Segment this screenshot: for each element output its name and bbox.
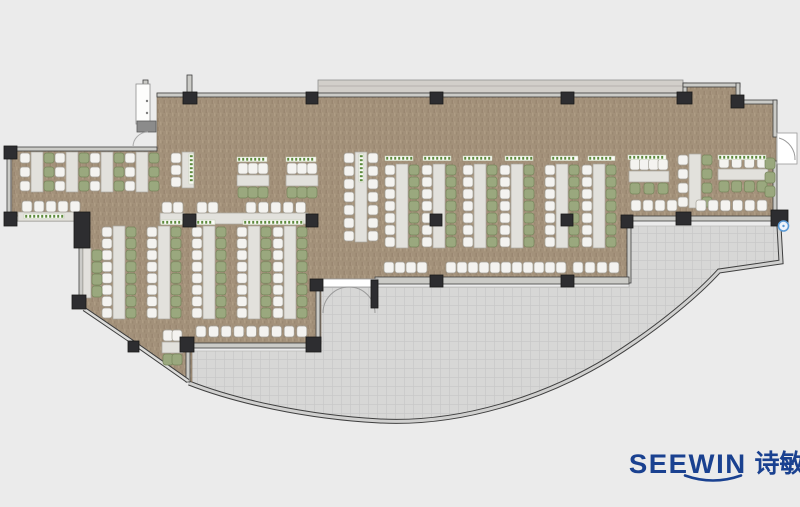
green-chair: [307, 187, 317, 198]
white-chair: [696, 200, 706, 211]
green-chair: [287, 187, 297, 198]
white-chair: [582, 177, 592, 187]
label-glyph: [649, 156, 651, 159]
white-chair: [500, 225, 510, 235]
white-chair: [192, 239, 202, 249]
label-glyph: [629, 156, 631, 159]
wall-segment: [79, 244, 83, 300]
white-chair: [196, 326, 206, 337]
white-chair: [147, 250, 157, 260]
white-chair: [545, 165, 555, 175]
desk: [284, 226, 296, 319]
label-glyph: [280, 221, 282, 224]
green-chair: [409, 165, 419, 175]
green-chair: [297, 227, 307, 237]
column: [430, 214, 442, 226]
column: [4, 146, 17, 159]
label-glyph: [264, 221, 266, 224]
white-chair: [259, 326, 269, 337]
white-chair: [545, 262, 555, 273]
white-chair: [58, 201, 68, 212]
white-chair: [582, 213, 592, 223]
green-chair: [171, 239, 181, 249]
label-glyph: [190, 163, 193, 165]
green-chair: [248, 187, 258, 198]
white-chair: [463, 165, 473, 175]
green-chair: [487, 225, 497, 235]
column: [310, 279, 323, 291]
white-chair: [192, 285, 202, 295]
desk: [248, 226, 260, 319]
green-chair: [261, 239, 271, 249]
green-chair: [446, 201, 456, 211]
desk: [113, 226, 125, 319]
logo-swoosh-icon: [682, 474, 744, 484]
white-chair: [479, 262, 489, 273]
white-chair: [102, 227, 112, 237]
label-glyph: [601, 157, 603, 160]
green-chair: [569, 189, 579, 199]
label-glyph: [242, 158, 244, 161]
white-chair: [20, 153, 30, 163]
label-glyph: [260, 221, 262, 224]
label-glyph: [747, 156, 749, 159]
white-chair: [534, 262, 544, 273]
white-chair: [22, 201, 32, 212]
white-chair: [368, 231, 378, 241]
green-chair: [409, 201, 419, 211]
label-glyph: [468, 157, 470, 160]
desk: [593, 164, 605, 248]
white-chair: [192, 227, 202, 237]
white-chair: [237, 227, 247, 237]
desk: [629, 171, 669, 182]
white-chair: [273, 262, 283, 272]
green-chair: [446, 177, 456, 187]
label-glyph: [476, 157, 478, 160]
label-glyph: [307, 158, 309, 161]
white-chair: [385, 189, 395, 199]
white-chair: [573, 262, 583, 273]
exterior-ledge: [318, 80, 683, 93]
green-chair: [238, 187, 248, 198]
white-chair: [655, 200, 665, 211]
green-chair: [719, 181, 729, 192]
white-chair: [102, 285, 112, 295]
wall-segment: [186, 348, 190, 382]
label-glyph: [506, 157, 508, 160]
green-chair: [216, 227, 226, 237]
green-chair: [171, 227, 181, 237]
label-glyph: [174, 221, 176, 224]
white-chair: [457, 262, 467, 273]
desk: [158, 226, 170, 319]
green-chair: [216, 239, 226, 249]
white-chair: [287, 163, 297, 174]
green-chair: [149, 167, 159, 177]
rotation-marker-dot: [782, 225, 784, 227]
desk: [31, 152, 43, 192]
label-glyph: [41, 215, 43, 218]
column: [430, 92, 443, 104]
green-chair: [524, 177, 534, 187]
white-chair: [500, 237, 510, 247]
green-chair: [297, 250, 307, 260]
green-chair: [606, 213, 616, 223]
label-glyph: [201, 221, 203, 224]
green-chair: [171, 250, 181, 260]
white-chair: [667, 200, 677, 211]
white-chair: [173, 202, 183, 213]
desk: [83, 248, 91, 298]
green-chair: [297, 239, 307, 249]
white-chair: [368, 179, 378, 189]
green-chair: [126, 273, 136, 283]
cad-marker: [779, 221, 789, 231]
label-glyph: [299, 158, 301, 161]
white-chair: [283, 202, 293, 213]
green-chair: [297, 187, 307, 198]
white-chair: [446, 262, 456, 273]
label-glyph: [25, 215, 27, 218]
label-glyph: [572, 157, 574, 160]
label-glyph: [291, 158, 293, 161]
label-glyph: [238, 158, 240, 161]
label-glyph: [763, 156, 765, 159]
label-glyph: [360, 175, 363, 177]
label-glyph: [727, 156, 729, 159]
white-chair: [422, 225, 432, 235]
white-chair: [422, 189, 432, 199]
green-chair: [569, 225, 579, 235]
white-chair: [523, 262, 533, 273]
label-glyph: [564, 157, 566, 160]
label-glyph: [292, 221, 294, 224]
desk: [556, 164, 568, 248]
white-chair: [273, 273, 283, 283]
white-chair: [500, 201, 510, 211]
desk: [136, 152, 148, 192]
label-glyph: [484, 157, 486, 160]
green-chair: [297, 273, 307, 283]
desk: [396, 164, 408, 248]
white-chair: [147, 262, 157, 272]
label-glyph: [190, 171, 193, 173]
column: [183, 214, 196, 227]
white-chair: [720, 200, 730, 211]
green-chair: [92, 274, 102, 285]
wall-segment: [316, 287, 320, 340]
desk: [66, 152, 78, 192]
white-chair: [271, 202, 281, 213]
green-chair: [126, 262, 136, 272]
white-chair: [512, 262, 522, 273]
white-chair: [631, 200, 641, 211]
white-chair: [368, 218, 378, 228]
white-chair: [344, 179, 354, 189]
label-glyph: [256, 221, 258, 224]
desk: [433, 164, 445, 248]
green-chair: [297, 308, 307, 318]
swoosh-path: [685, 476, 741, 481]
label-glyph: [284, 221, 286, 224]
wall-segment: [683, 83, 740, 87]
white-chair: [582, 237, 592, 247]
green-chair: [297, 285, 307, 295]
label-glyph: [510, 157, 512, 160]
white-chair: [678, 155, 688, 165]
green-chair: [409, 237, 419, 247]
green-chair: [569, 165, 579, 175]
white-chair: [368, 205, 378, 215]
label-glyph: [394, 157, 396, 160]
label-glyph: [29, 215, 31, 218]
green-chair: [126, 296, 136, 306]
white-chair: [463, 177, 473, 187]
white-chair: [307, 163, 317, 174]
white-chair: [500, 177, 510, 187]
label-glyph: [311, 158, 313, 161]
wall-segment: [7, 152, 11, 218]
green-chair: [44, 181, 54, 191]
white-chair: [385, 201, 395, 211]
green-chair: [765, 158, 775, 169]
green-chair: [630, 183, 640, 194]
label-glyph: [661, 156, 663, 159]
white-chair: [609, 262, 619, 273]
green-chair: [524, 225, 534, 235]
east-door-leaf: [777, 133, 797, 164]
label-glyph: [530, 157, 532, 160]
column: [676, 212, 691, 225]
column: [306, 92, 318, 104]
column: [72, 295, 86, 309]
label-glyph: [178, 221, 180, 224]
white-chair: [20, 167, 30, 177]
label-glyph: [252, 221, 254, 224]
cabinet-knob: [146, 112, 148, 114]
white-chair: [406, 262, 416, 273]
white-chair: [422, 165, 432, 175]
white-chair: [422, 177, 432, 187]
white-chair: [500, 189, 510, 199]
white-chair: [272, 326, 282, 337]
green-chair: [258, 187, 268, 198]
white-chair: [147, 227, 157, 237]
label-glyph: [258, 158, 260, 161]
white-chair: [678, 197, 688, 207]
label-glyph: [568, 157, 570, 160]
green-chair: [446, 225, 456, 235]
green-chair: [149, 181, 159, 191]
white-chair: [102, 239, 112, 249]
green-chair: [92, 250, 102, 261]
label-glyph: [432, 157, 434, 160]
white-chair: [273, 285, 283, 295]
green-chair: [606, 165, 616, 175]
green-chair: [409, 189, 419, 199]
white-chair: [237, 308, 247, 318]
white-chair: [344, 231, 354, 241]
white-chair: [273, 239, 283, 249]
label-glyph: [276, 221, 278, 224]
green-chair: [658, 183, 668, 194]
green-chair: [446, 213, 456, 223]
white-chair: [296, 202, 306, 213]
white-chair: [102, 273, 112, 283]
door-swing-arc: [133, 132, 148, 147]
white-chair: [163, 330, 173, 341]
white-chair: [90, 181, 100, 191]
green-chair: [261, 296, 271, 306]
white-chair: [545, 189, 555, 199]
label-glyph: [244, 221, 246, 224]
label-glyph: [53, 215, 55, 218]
label-glyph: [488, 157, 490, 160]
label-glyph: [360, 163, 363, 165]
green-chair: [524, 237, 534, 247]
green-chair: [92, 286, 102, 297]
white-chair: [422, 201, 432, 211]
desk: [286, 175, 318, 186]
white-chair: [757, 200, 767, 211]
green-chair: [702, 169, 712, 179]
white-chair: [192, 250, 202, 260]
white-chair: [385, 237, 395, 247]
green-chair: [216, 285, 226, 295]
column: [128, 341, 139, 352]
label-glyph: [719, 156, 721, 159]
label-glyph: [593, 157, 595, 160]
green-chair: [216, 262, 226, 272]
logo-chinese-text: 诗敏: [755, 451, 800, 478]
wall-segment: [187, 75, 192, 93]
label-glyph: [254, 158, 256, 161]
label-glyph: [190, 159, 193, 161]
white-chair: [162, 202, 172, 213]
label-glyph: [428, 157, 430, 160]
column: [621, 215, 633, 228]
green-chair: [79, 181, 89, 191]
green-chair: [569, 201, 579, 211]
floor-plan-drawing: [0, 0, 800, 507]
green-chair: [487, 177, 497, 187]
green-chair: [487, 213, 497, 223]
label-glyph: [288, 221, 290, 224]
green-chair: [732, 181, 742, 192]
label-glyph: [751, 156, 753, 159]
green-chair: [216, 250, 226, 260]
green-chair: [409, 177, 419, 187]
white-chair: [344, 205, 354, 215]
white-chair: [90, 153, 100, 163]
label-glyph: [633, 156, 635, 159]
label-glyph: [170, 221, 172, 224]
green-chair: [171, 262, 181, 272]
white-chair: [545, 225, 555, 235]
column: [561, 92, 574, 104]
label-glyph: [287, 158, 289, 161]
white-chair: [344, 192, 354, 202]
label-glyph: [739, 156, 741, 159]
white-chair: [147, 239, 157, 249]
white-chair: [125, 181, 135, 191]
label-glyph: [37, 215, 39, 218]
green-chair: [261, 285, 271, 295]
green-chair: [114, 167, 124, 177]
label-glyph: [759, 156, 761, 159]
green-chair: [44, 167, 54, 177]
label-glyph: [300, 221, 302, 224]
green-chair: [524, 189, 534, 199]
white-chair: [384, 262, 394, 273]
label-glyph: [166, 221, 168, 224]
white-chair: [368, 166, 378, 176]
desk: [237, 175, 269, 186]
label-glyph: [440, 157, 442, 160]
green-chair: [261, 250, 271, 260]
column: [677, 92, 692, 104]
green-chair: [446, 237, 456, 247]
label-glyph: [190, 175, 193, 177]
white-chair: [237, 250, 247, 260]
white-chair: [237, 273, 247, 283]
wall-segment: [627, 216, 777, 221]
white-chair: [237, 239, 247, 249]
column: [731, 95, 744, 108]
white-chair: [649, 159, 659, 170]
green-chair: [216, 296, 226, 306]
label-glyph: [480, 157, 482, 160]
desk: [474, 164, 486, 248]
white-chair: [368, 192, 378, 202]
green-chair: [261, 308, 271, 318]
white-chair: [34, 201, 44, 212]
white-chair: [463, 201, 473, 211]
green-chair: [524, 201, 534, 211]
white-chair: [238, 163, 248, 174]
cabinet-knob: [146, 100, 148, 102]
label-glyph: [522, 157, 524, 160]
green-chair: [487, 189, 497, 199]
green-chair: [606, 177, 616, 187]
white-chair: [468, 262, 478, 273]
white-chair: [55, 153, 65, 163]
label-glyph: [272, 221, 274, 224]
label-glyph: [303, 158, 305, 161]
white-chair: [597, 262, 607, 273]
white-chair: [102, 250, 112, 260]
green-chair: [216, 273, 226, 283]
label-glyph: [560, 157, 562, 160]
white-chair: [246, 326, 256, 337]
green-chair: [765, 172, 775, 183]
green-chair: [487, 165, 497, 175]
wall-segment: [627, 221, 631, 283]
white-chair: [90, 167, 100, 177]
label-glyph: [205, 221, 207, 224]
label-glyph: [424, 157, 426, 160]
white-chair: [545, 177, 555, 187]
green-chair: [569, 177, 579, 187]
green-chair: [79, 167, 89, 177]
green-chair: [524, 213, 534, 223]
white-chair: [171, 153, 181, 163]
label-glyph: [526, 157, 528, 160]
label-glyph: [514, 157, 516, 160]
white-chair: [102, 262, 112, 272]
green-chair: [171, 285, 181, 295]
